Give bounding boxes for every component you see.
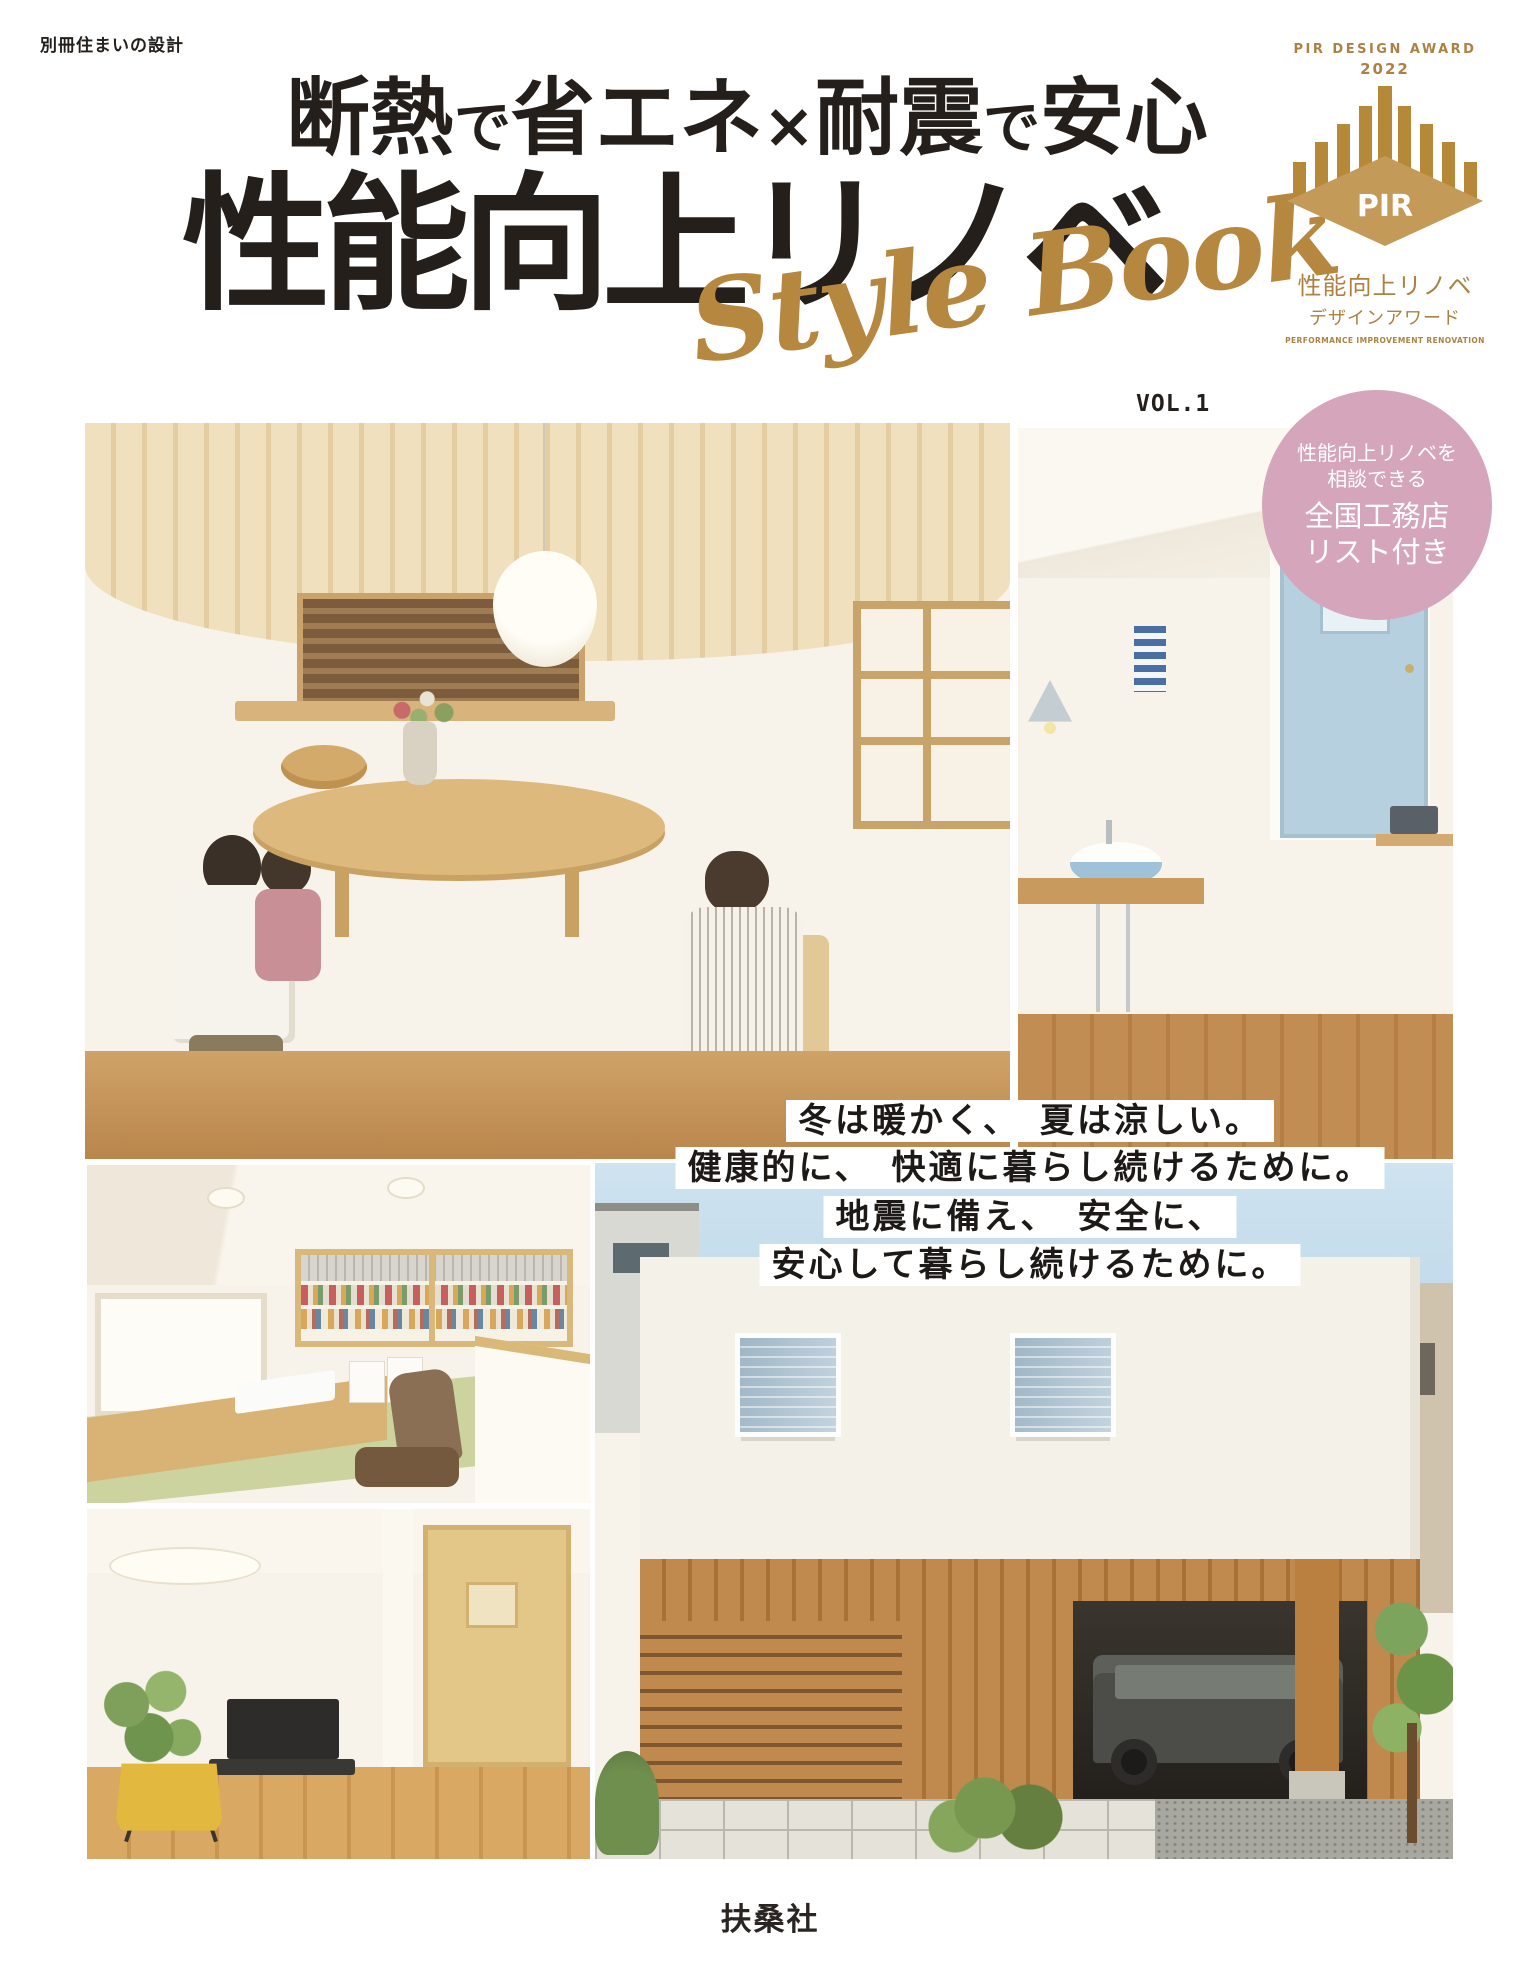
copy-line-3: 地震に備え、 安全に、: [824, 1196, 1237, 1238]
facade-window-right: [1010, 1333, 1116, 1437]
basin-pipe-left: [1096, 904, 1100, 1012]
ceiling-light-1: [207, 1187, 245, 1209]
title-seg-cross: ×: [763, 89, 815, 162]
floor-chair-seat: [355, 1447, 459, 1487]
circle-line3: 全国工務店: [1304, 498, 1449, 534]
title-seg-de2: で: [983, 95, 1040, 161]
pendant-cord: [543, 423, 545, 555]
wall-lamp-bulb: [1044, 722, 1056, 734]
yellow-butterfly-chair: [115, 1755, 223, 1841]
striped-towel: [1134, 626, 1166, 692]
photo-desk-room: [87, 1165, 590, 1503]
award-logo-icon: PIR: [1287, 84, 1483, 262]
copy-line-4: 安心して暮らし続けるために。: [760, 1244, 1301, 1286]
attic-door: [423, 1525, 571, 1767]
ceiling-light-2: [387, 1177, 425, 1199]
award-monogram: PIR: [1357, 189, 1413, 224]
shelf-box: [1390, 806, 1438, 834]
circle-line1: 性能向上リノベを: [1297, 440, 1457, 466]
award-heading: PIR DESIGN AWARD: [1283, 42, 1487, 57]
shoji-mullion-h2: [861, 737, 1010, 745]
title-seg-taishin: 耐震: [815, 69, 983, 167]
bookshelf-divider: [429, 1255, 435, 1341]
title-line1: 断熱で省エネ×耐震で安心: [286, 76, 1208, 160]
award-jp-line1: 性能向上リノベ: [1283, 266, 1487, 301]
shoji-mullion-h1: [861, 671, 1010, 679]
white-storage-box-1: [349, 1361, 385, 1403]
wall-bookshelf: [295, 1249, 573, 1347]
mother-hair: [705, 851, 769, 913]
volume-label: VOL.1: [1136, 391, 1210, 417]
nationwide-builders-circle-badge: 性能向上リノベを 相談できる 全国工務店 リスト付き: [1262, 390, 1492, 620]
door-knob: [1405, 664, 1414, 673]
photo-living-room: [85, 423, 1010, 1159]
copy-line-1: 冬は暖かく、 夏は涼しい。: [786, 1100, 1274, 1142]
title-seg-dannetsu: 断熱: [286, 69, 454, 167]
title-seg-shoene: 省エネ: [511, 69, 763, 167]
tv-stand: [209, 1759, 355, 1775]
attic-ceiling-light: [109, 1547, 261, 1585]
television: [227, 1699, 339, 1759]
title-seg-de1: で: [454, 95, 511, 161]
bush-left: [595, 1751, 659, 1855]
faucet: [1106, 820, 1112, 844]
circle-line4: リスト付き: [1304, 534, 1449, 570]
table-leg-right: [565, 871, 579, 937]
basin-counter: [1018, 878, 1204, 904]
copy-line-2: 健康的に、 快適に暮らし続けるために。: [676, 1147, 1385, 1189]
tree-trunk: [1407, 1723, 1417, 1843]
award-jp-line2: デザインアワード: [1283, 304, 1487, 330]
facade-window-left: [735, 1333, 841, 1437]
table-leg-left: [335, 871, 349, 937]
window-blind-lines-left: [740, 1338, 836, 1432]
shoji-window: [853, 601, 1010, 829]
publisher-logo: 扶桑社: [721, 1894, 820, 1939]
award-year: 2022: [1283, 60, 1487, 78]
round-dining-table: [253, 779, 665, 875]
shoji-mullion-v: [923, 609, 931, 821]
attic-door-window: [466, 1582, 518, 1628]
basin-pipe-right: [1126, 904, 1130, 1012]
title-seg-anshin: 安心: [1040, 69, 1208, 167]
attic-column: [383, 1509, 413, 1771]
bush-center: [925, 1763, 1075, 1853]
pir-design-award-badge: PIR DESIGN AWARD 2022 PIR 性能向上リノベ デザインアワ…: [1283, 42, 1487, 345]
suv-windows: [1115, 1665, 1315, 1699]
imprint-label: 別冊住まいの設計: [40, 31, 184, 56]
child-outfit: [255, 889, 321, 981]
garage-wood-post: [1295, 1559, 1339, 1781]
circle-line2: 相談できる: [1327, 466, 1427, 492]
loft-railing-wall: [475, 1336, 590, 1503]
wall-shelf: [1376, 834, 1453, 846]
award-en-line: PERFORMANCE IMPROVEMENT RENOVATION: [1283, 336, 1487, 345]
magazine-cover: 別冊住まいの設計 断熱で省エネ×耐震で安心 性能向上リノベ Style Book…: [0, 0, 1536, 1983]
suv-wheel-front: [1111, 1739, 1157, 1785]
flower-vase: [403, 721, 437, 785]
rattan-basket: [281, 745, 367, 789]
photo-attic-room: [87, 1509, 590, 1859]
window-blind-lines-right: [1015, 1338, 1111, 1432]
